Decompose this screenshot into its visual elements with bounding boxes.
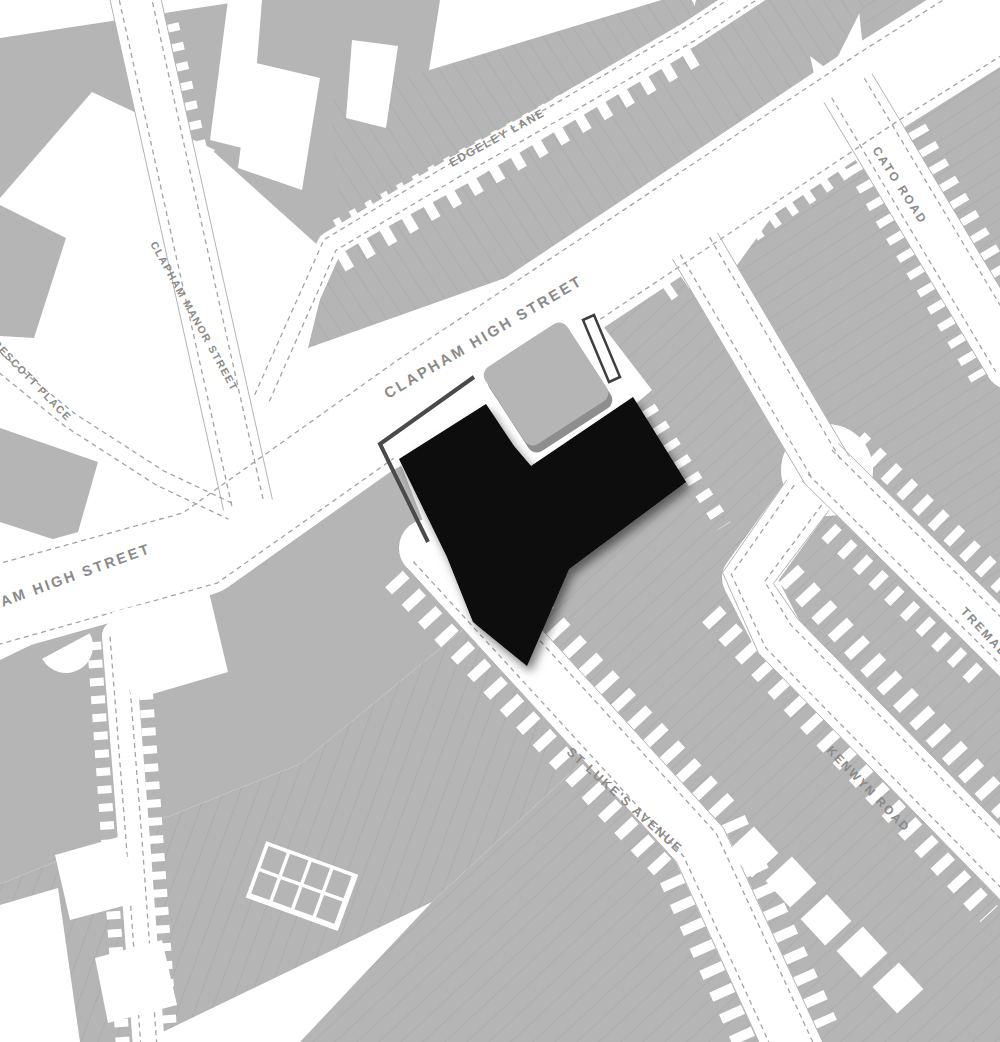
map-svg: CLAPHAM HIGH STREETCLAPHAM HIGH STREETED… bbox=[0, 0, 1000, 1042]
block-b-left-edge-1 bbox=[0, 205, 66, 338]
site-location-map: CLAPHAM HIGH STREETCLAPHAM HIGH STREETED… bbox=[0, 0, 1000, 1042]
